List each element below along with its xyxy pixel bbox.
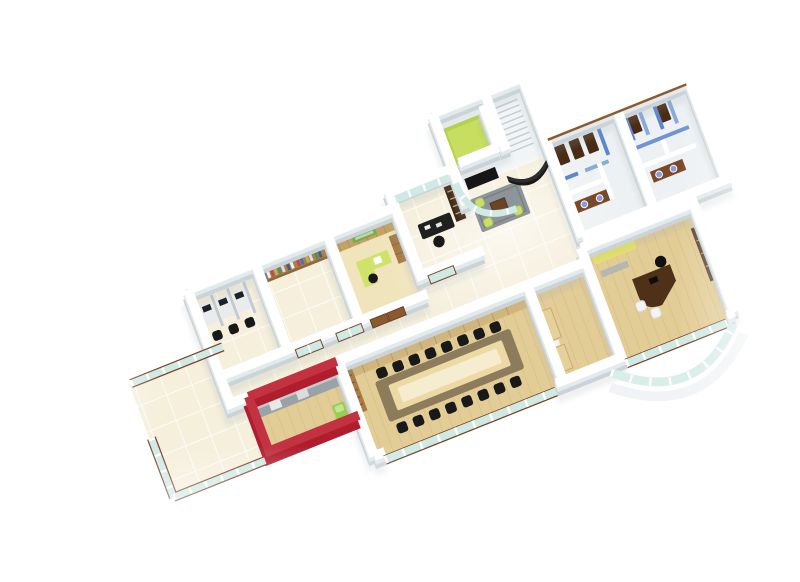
office-floor-plan-render (40, 16, 800, 566)
fade-bottom (40, 446, 800, 566)
floor-plan-svg (40, 16, 800, 566)
fade-top (40, 16, 800, 86)
